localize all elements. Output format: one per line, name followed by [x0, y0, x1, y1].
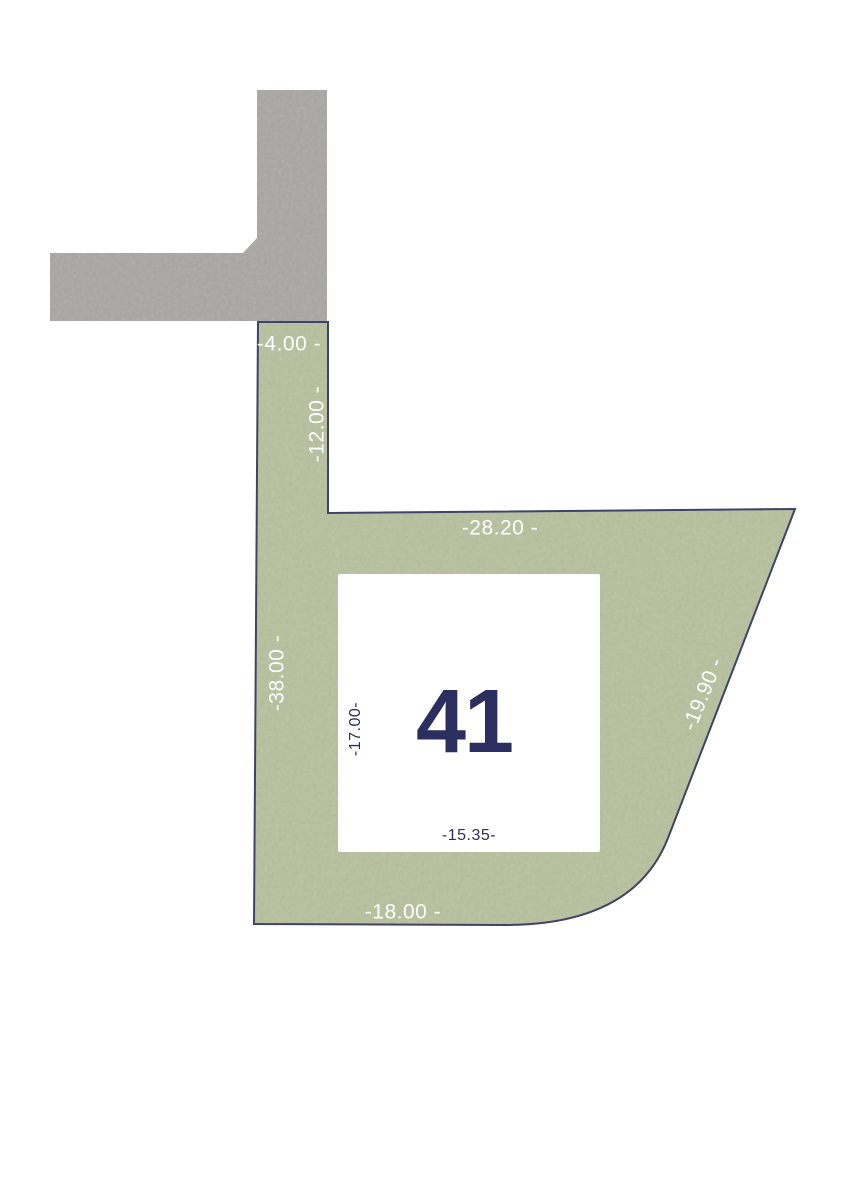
- building-footprint: [338, 574, 600, 852]
- road-shape: [50, 90, 327, 321]
- site-plan-canvas: -4.00 - -12.00 - -28.20 - -38.00 - -19.9…: [0, 0, 848, 1200]
- site-plan-drawing: [0, 0, 848, 1200]
